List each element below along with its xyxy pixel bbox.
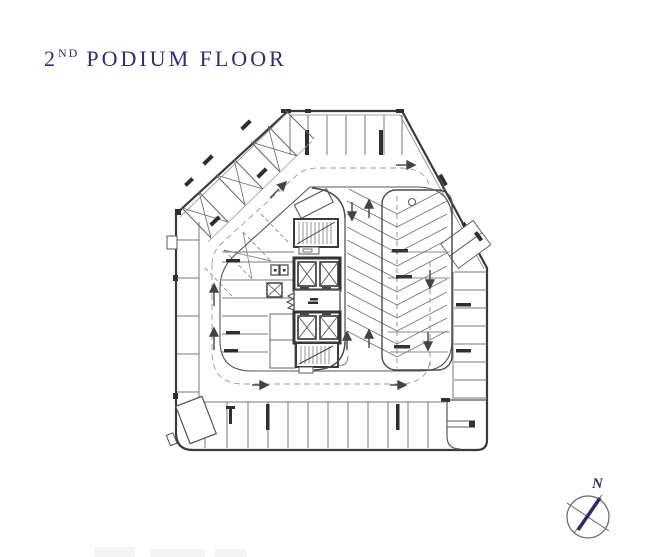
cropped-text-artifact bbox=[215, 549, 247, 557]
elevator-lobby bbox=[287, 290, 340, 312]
floor-plan-drawing bbox=[0, 0, 660, 557]
service-shafts bbox=[267, 265, 288, 297]
top-parking-stalls bbox=[290, 115, 402, 155]
elevator-bank-top bbox=[294, 258, 340, 290]
right-parking-stalls bbox=[453, 272, 487, 400]
cropped-text-artifact bbox=[150, 549, 205, 557]
stair-top bbox=[294, 219, 338, 254]
compass-icon bbox=[567, 495, 609, 538]
angled-stalls-top-right bbox=[409, 199, 491, 269]
cropped-text-artifact bbox=[95, 547, 135, 557]
north-label: N bbox=[592, 476, 603, 493]
parked-car-outline bbox=[294, 189, 333, 219]
north-arrow-icon bbox=[578, 498, 600, 530]
elevator-bank-bottom bbox=[294, 312, 340, 343]
left-parking-stalls bbox=[177, 222, 199, 402]
bottom-parking-stalls bbox=[166, 396, 447, 448]
